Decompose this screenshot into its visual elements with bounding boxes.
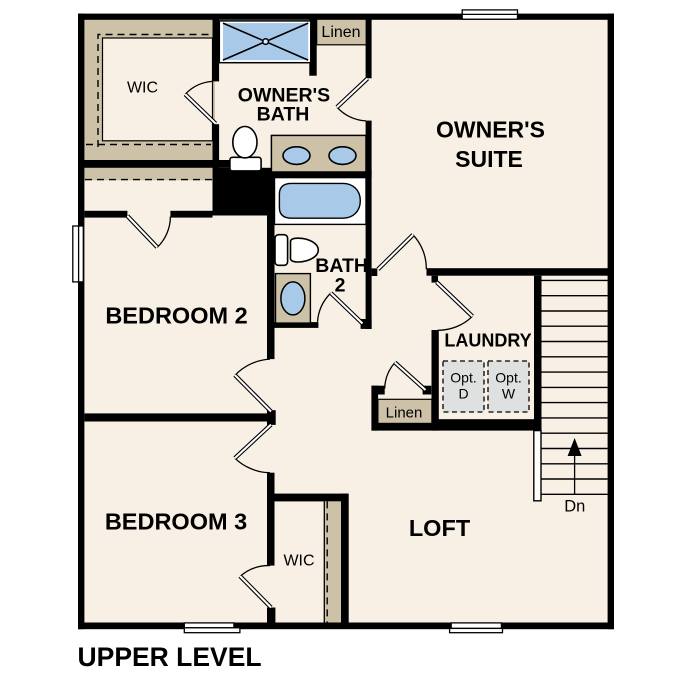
svg-text:WIC: WIC (283, 553, 314, 570)
svg-text:2: 2 (335, 274, 346, 296)
svg-text:BEDROOM 3: BEDROOM 3 (105, 509, 247, 535)
svg-text:LAUNDRY: LAUNDRY (444, 331, 531, 351)
svg-text:Opt.: Opt. (495, 370, 521, 386)
svg-text:OWNER'S: OWNER'S (436, 117, 545, 143)
svg-text:D: D (458, 386, 468, 402)
svg-text:Dn: Dn (564, 498, 585, 516)
svg-text:Linen: Linen (386, 405, 423, 422)
svg-text:Linen: Linen (321, 24, 360, 41)
svg-text:LOFT: LOFT (409, 515, 471, 541)
svg-text:SUITE: SUITE (455, 146, 523, 172)
svg-text:W: W (502, 386, 516, 402)
svg-text:BEDROOM 2: BEDROOM 2 (105, 303, 247, 329)
svg-text:BATH: BATH (257, 104, 310, 126)
svg-text:WIC: WIC (127, 80, 158, 97)
svg-text:UPPER LEVEL: UPPER LEVEL (78, 642, 262, 672)
svg-text:Opt.: Opt. (450, 370, 476, 386)
